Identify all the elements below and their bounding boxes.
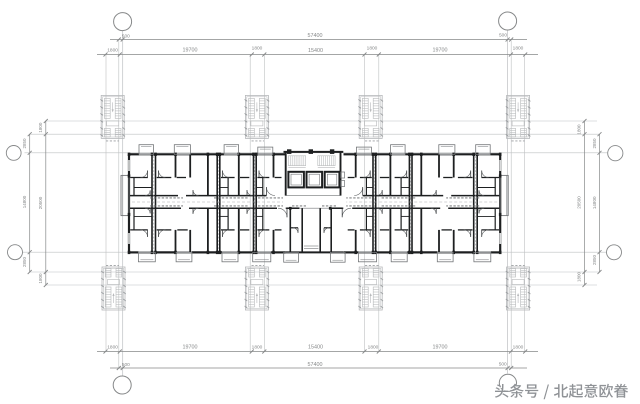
svg-text:2850: 2850 <box>22 138 27 149</box>
svg-text:1800: 1800 <box>368 345 379 351</box>
svg-text:500: 500 <box>122 33 130 39</box>
svg-text:14800: 14800 <box>22 195 27 208</box>
svg-text:1800: 1800 <box>367 45 378 51</box>
svg-text:19700: 19700 <box>433 47 448 53</box>
svg-text:500: 500 <box>122 362 130 368</box>
svg-text:15400: 15400 <box>308 345 323 351</box>
svg-text:500: 500 <box>499 32 507 38</box>
svg-text:1800: 1800 <box>577 124 582 135</box>
svg-text:500: 500 <box>499 362 507 368</box>
svg-text:15400: 15400 <box>308 48 323 54</box>
svg-text:1800: 1800 <box>38 122 43 133</box>
svg-text:2850: 2850 <box>22 256 27 267</box>
svg-text:57400: 57400 <box>308 33 323 39</box>
svg-text:1800: 1800 <box>38 273 43 284</box>
svg-text:19700: 19700 <box>433 345 448 351</box>
svg-text:20500: 20500 <box>577 196 582 209</box>
svg-text:1800: 1800 <box>252 45 263 51</box>
svg-text:1800: 1800 <box>513 345 524 351</box>
svg-text:1800: 1800 <box>107 47 118 53</box>
svg-text:14800: 14800 <box>592 196 597 209</box>
svg-text:1800: 1800 <box>577 271 582 282</box>
svg-text:2850: 2850 <box>592 138 597 149</box>
svg-text:1800: 1800 <box>107 345 118 351</box>
svg-text:1800: 1800 <box>513 45 524 51</box>
svg-text:1800: 1800 <box>252 345 263 351</box>
svg-text:19700: 19700 <box>183 47 198 53</box>
svg-text:20500: 20500 <box>38 196 43 209</box>
svg-text:57400: 57400 <box>308 362 323 368</box>
svg-text:19700: 19700 <box>183 345 198 351</box>
svg-text:2850: 2850 <box>592 254 597 265</box>
